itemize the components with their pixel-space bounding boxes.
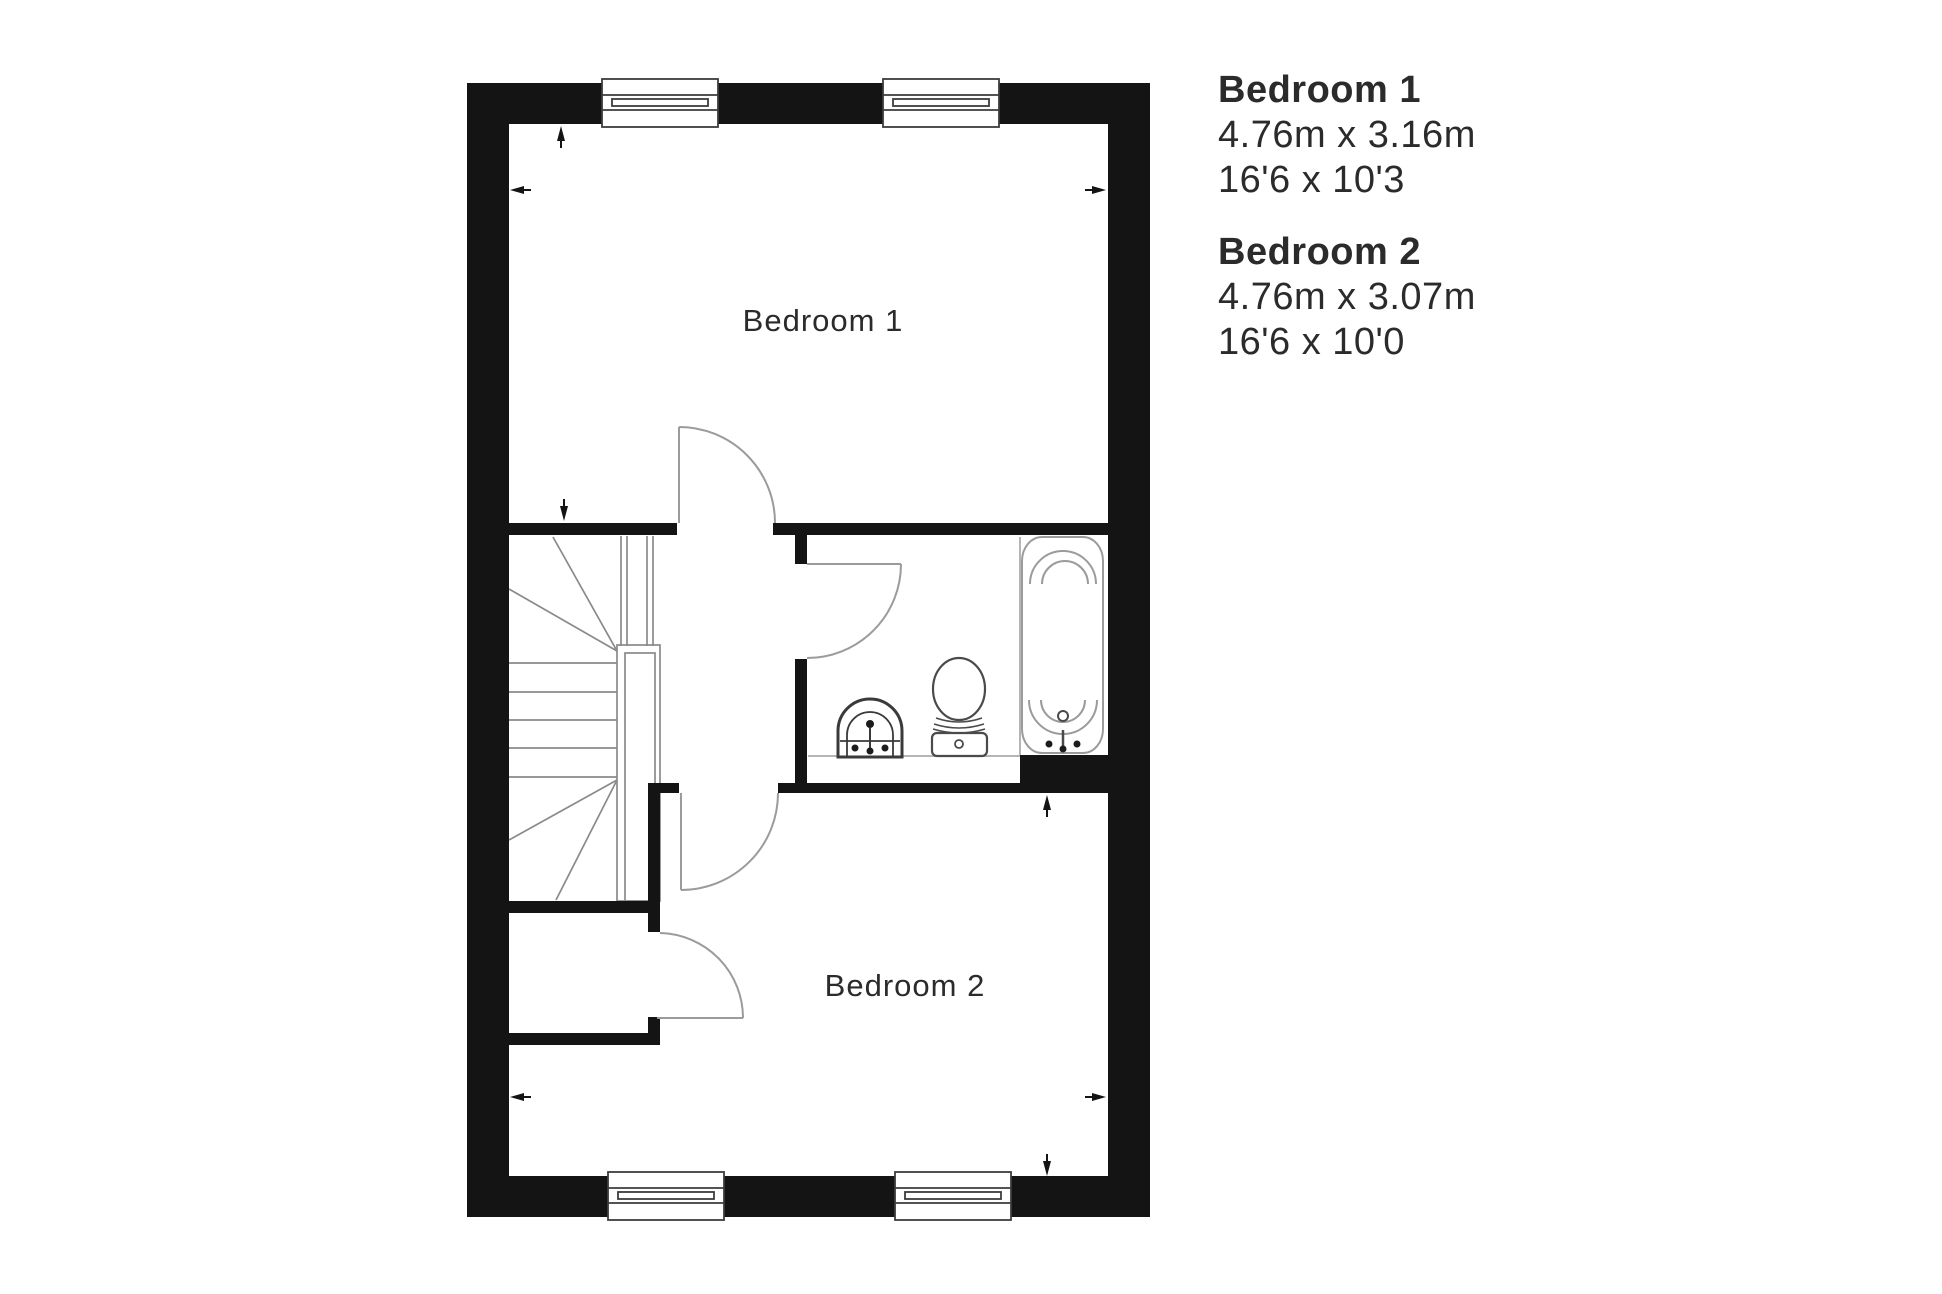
legend-bedroom-2-metric: 4.76m x 3.07m [1218, 275, 1476, 320]
wall-bedroom1-south-left [508, 523, 677, 535]
legend-bedroom-2-name: Bedroom 2 [1218, 230, 1476, 275]
tick-bedroom2-right [1085, 1093, 1106, 1101]
toilet-icon [932, 658, 987, 756]
outer-wall-top [467, 83, 1150, 124]
bathroom-door-icon [807, 564, 901, 658]
wall-cupboard-east-top [648, 783, 660, 932]
bedroom-1-door-icon [679, 427, 775, 523]
window-icon-bottom-right [895, 1172, 1011, 1220]
tick-bedroom1-top [557, 126, 565, 148]
legend-bedroom-1-name: Bedroom 1 [1218, 68, 1476, 113]
window-icon-top-left [602, 79, 718, 127]
outer-wall-bottom [467, 1176, 1150, 1217]
outer-wall-left [467, 83, 509, 1217]
legend-bedroom-2-imperial: 16'6 x 10'0 [1218, 320, 1476, 365]
bedroom-2-label: Bedroom 2 [825, 968, 986, 1003]
floor-plan: Bedroom 1 Bedroom 2 [0, 0, 1942, 1294]
wall-bathroom-south [778, 783, 1020, 793]
tick-bedroom1-bottom [560, 499, 568, 521]
tick-bedroom1-right [1085, 186, 1106, 194]
legend-bedroom-1: Bedroom 1 4.76m x 3.16m 16'6 x 10'3 [1218, 68, 1476, 203]
tick-bedroom2-left [510, 1093, 531, 1101]
tick-bedroom1-left [510, 186, 531, 194]
window-icon-top-right [883, 79, 999, 127]
wall-block-below-bath [1020, 755, 1108, 793]
cupboard-door-icon [657, 933, 743, 1018]
bedroom-2-door-icon [681, 793, 778, 890]
sink-icon [838, 699, 902, 757]
outer-wall-right [1108, 83, 1150, 1217]
tick-bedroom2-top [1043, 795, 1051, 817]
dimension-ticks [510, 126, 1106, 1176]
windows [602, 79, 1011, 1220]
wall-landing-south-stub [660, 783, 679, 793]
bath-icon [1022, 537, 1103, 753]
wall-bathroom-west-bottom [795, 659, 807, 783]
wall-stairs-south [508, 901, 660, 913]
legend-bedroom-2: Bedroom 2 4.76m x 3.07m 16'6 x 10'0 [1218, 230, 1476, 365]
legend-bedroom-1-imperial: 16'6 x 10'3 [1218, 158, 1476, 203]
wall-bedroom1-south-right [773, 523, 1108, 535]
wall-cupboard-south [508, 1033, 660, 1045]
bedroom-1-label: Bedroom 1 [743, 303, 904, 338]
walls [467, 83, 1150, 1217]
legend: Bedroom 1 4.76m x 3.16m 16'6 x 10'3 Bedr… [1218, 68, 1476, 365]
legend-bedroom-1-metric: 4.76m x 3.16m [1218, 113, 1476, 158]
wall-bathroom-west-top [795, 535, 807, 564]
tick-bedroom2-bottom [1043, 1154, 1051, 1176]
floorplan-page: { "plan": { "room_labels": [ { "id": "be… [0, 0, 1942, 1294]
winder-staircase-icon [509, 536, 660, 901]
window-icon-bottom-left [608, 1172, 724, 1220]
